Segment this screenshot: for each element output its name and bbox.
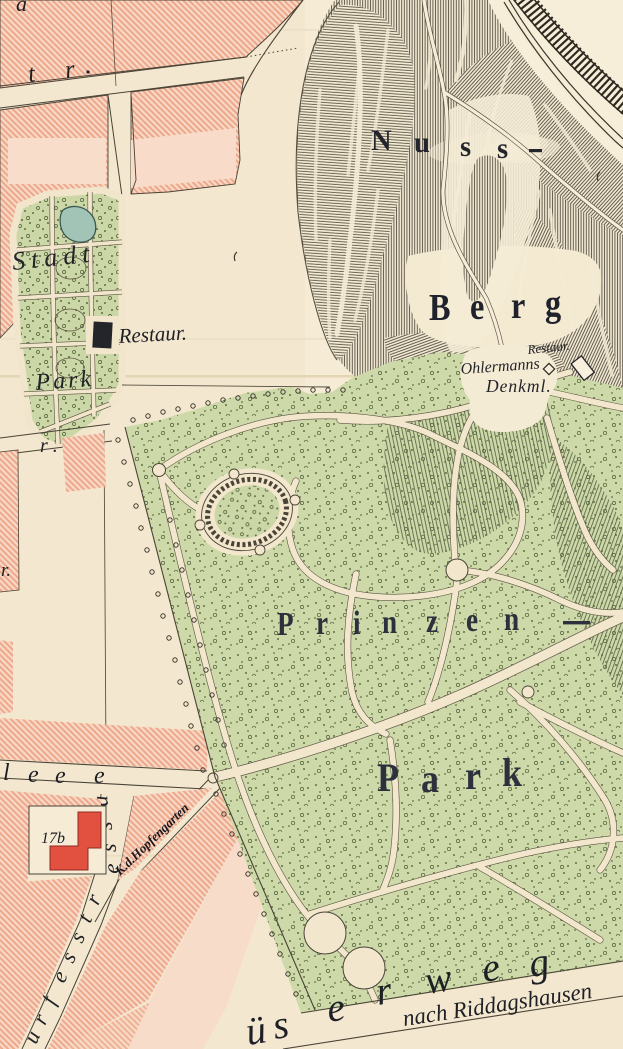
svg-text:e: e [94, 763, 105, 789]
svg-text:n: n [382, 603, 397, 641]
svg-text:r: r [316, 604, 328, 642]
svg-text:s: s [460, 130, 471, 163]
svg-text:r.: r. [1, 560, 11, 581]
svg-text:Park: Park [34, 366, 95, 396]
svg-text:g: g [545, 283, 561, 325]
svg-text:Restaur.: Restaur. [117, 320, 187, 348]
svg-text:P: P [377, 756, 399, 800]
svg-text:B: B [429, 287, 451, 329]
svg-text:i: i [353, 604, 361, 642]
svg-text:r .: r . [40, 435, 58, 457]
svg-text:e: e [466, 601, 478, 639]
svg-text:e: e [55, 763, 66, 789]
svg-text:r: r [465, 754, 481, 798]
svg-text:k: k [502, 751, 523, 795]
svg-text:z: z [426, 602, 438, 640]
svg-text:a: a [421, 757, 439, 801]
svg-text:P: P [277, 605, 294, 643]
svg-text:r: r [511, 285, 525, 327]
svg-text:Denkml.: Denkml. [485, 376, 552, 396]
svg-text:e: e [28, 762, 39, 788]
svg-text:N: N [371, 124, 392, 157]
svg-text:u: u [414, 126, 430, 159]
svg-text:l: l [3, 760, 10, 786]
svg-text:a: a [16, 0, 27, 16]
svg-text:17b: 17b [41, 830, 65, 847]
svg-text:s: s [497, 132, 508, 165]
svg-text:n: n [504, 600, 519, 638]
svg-text:e: e [470, 286, 484, 328]
